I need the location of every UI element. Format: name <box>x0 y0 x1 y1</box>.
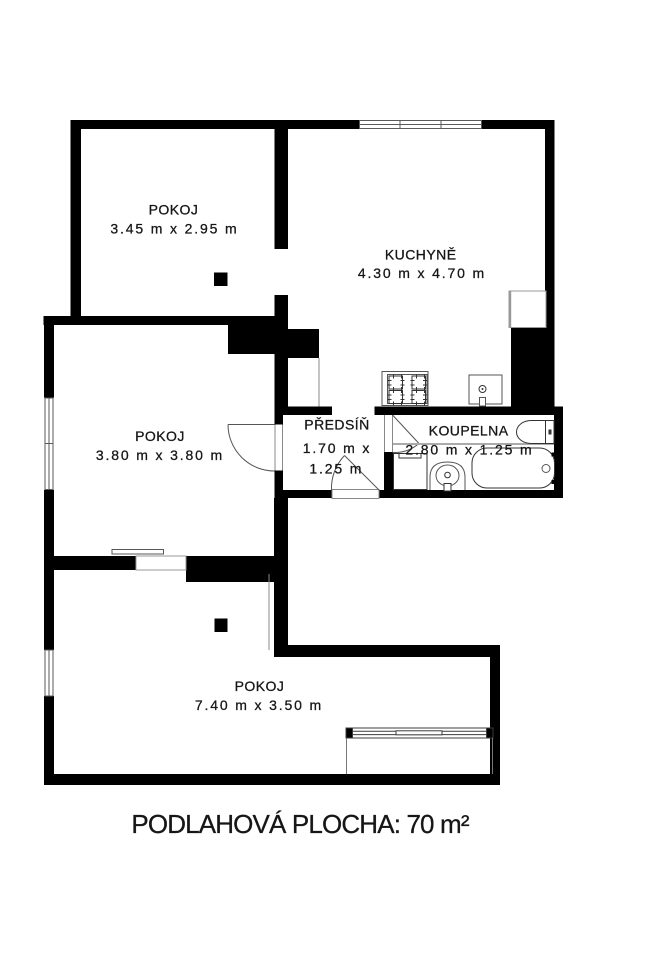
svg-text:1.25 m: 1.25 m <box>309 461 363 477</box>
svg-text:2.80 m x 1.25 m: 2.80 m x 1.25 m <box>405 442 533 458</box>
svg-text:PODLAHOVÁ PLOCHA: 70 m²: PODLAHOVÁ PLOCHA: 70 m² <box>131 809 470 839</box>
svg-text:POKOJ: POKOJ <box>135 428 185 444</box>
svg-text:POKOJ: POKOJ <box>149 202 199 218</box>
svg-text:POKOJ: POKOJ <box>235 678 285 694</box>
svg-text:3.45 m x 2.95 m: 3.45 m x 2.95 m <box>110 221 238 237</box>
svg-text:KOUPELNA: KOUPELNA <box>429 423 509 439</box>
svg-text:KUCHYNĚ: KUCHYNĚ <box>385 247 457 263</box>
svg-text:4.30 m x 4.70 m: 4.30 m x 4.70 m <box>358 265 486 281</box>
svg-text:3.80 m x 3.80 m: 3.80 m x 3.80 m <box>96 447 224 463</box>
svg-text:7.40 m x 3.50 m: 7.40 m x 3.50 m <box>195 697 323 713</box>
svg-text:1.70 m x: 1.70 m x <box>303 440 372 456</box>
svg-text:PŘEDSÍŇ: PŘEDSÍŇ <box>304 417 369 433</box>
